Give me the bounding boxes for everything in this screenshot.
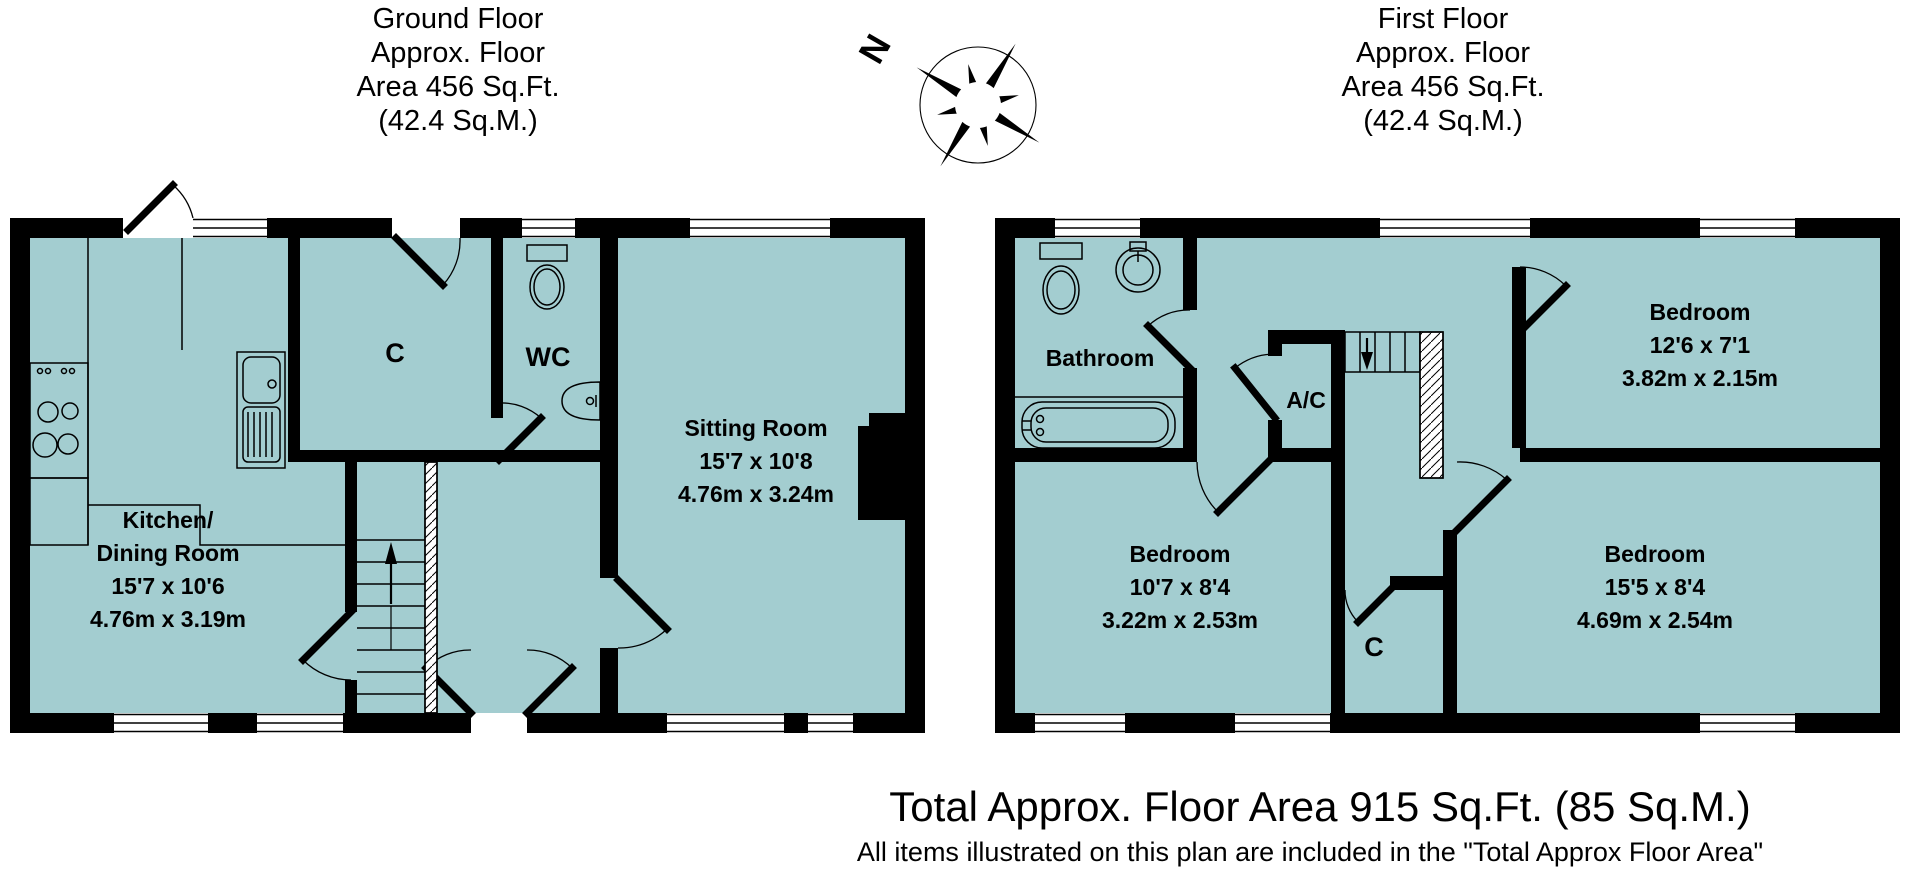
plan-graphics	[0, 0, 1920, 882]
chimney-breast	[858, 413, 905, 520]
sitting-room-label: Sitting Room 15'7 x 10'8 4.76m x 3.24m	[678, 412, 834, 511]
bedroom-left-label: Bedroom 10'7 x 8'4 3.22m x 2.53m	[1102, 538, 1258, 637]
airing-cupboard-label: A/C	[1286, 384, 1326, 417]
ground-floor-title: Ground Floor	[356, 2, 559, 36]
ground-floor-header: Ground Floor Approx. Floor Area 456 Sq.F…	[356, 2, 559, 138]
first-cupboard-label: C	[1364, 630, 1384, 664]
bedroom-right-label: Bedroom 15'5 x 8'4 4.69m x 2.54m	[1577, 538, 1733, 637]
wc-label: WC	[526, 340, 571, 374]
bedroom-top-label: Bedroom 12'6 x 7'1 3.82m x 2.15m	[1622, 296, 1778, 395]
footer-disclaimer-text: All items illustrated on this plan are i…	[857, 836, 1763, 868]
bathroom-label: Bathroom	[1046, 342, 1155, 375]
ground-cupboard-label: C	[385, 336, 405, 370]
total-floor-area-text: Total Approx. Floor Area 915 Sq.Ft. (85 …	[889, 784, 1750, 830]
kitchen-dining-room-label: Kitchen/ Dining Room 15'7 x 10'6 4.76m x…	[90, 504, 246, 636]
compass-rose	[879, 6, 1077, 204]
first-floor-header: First Floor Approx. Floor Area 456 Sq.Ft…	[1341, 2, 1544, 138]
floor-plan-page: Ground Floor Approx. Floor Area 456 Sq.F…	[0, 0, 1920, 882]
first-floor-title: First Floor	[1341, 2, 1544, 36]
